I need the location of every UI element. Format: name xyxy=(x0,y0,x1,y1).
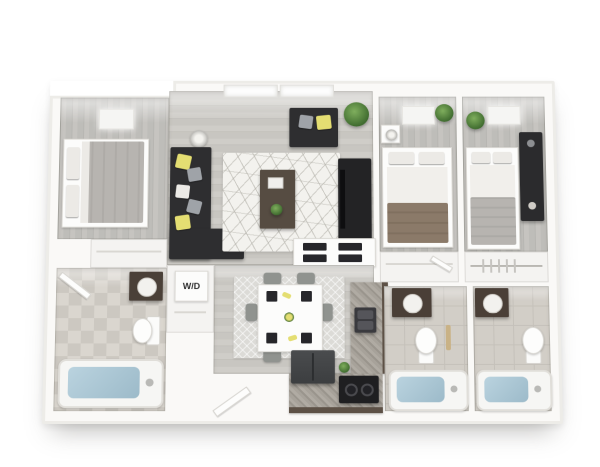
towel-bar xyxy=(446,325,451,350)
bar-placemat xyxy=(303,254,327,262)
washer-dryer-unit: W/D xyxy=(174,271,208,302)
closet-hangers xyxy=(482,259,522,272)
bed-blanket-gray xyxy=(80,142,144,223)
bedroom-3-plant xyxy=(466,112,485,130)
sofa-pillow-white xyxy=(175,184,190,199)
vanity-sink xyxy=(403,294,423,313)
vanity-sink xyxy=(483,294,503,313)
bar-placemat xyxy=(303,243,327,251)
bathroom-1-vanity xyxy=(129,272,163,301)
living-room-floor xyxy=(167,91,374,265)
living-window xyxy=(223,85,277,98)
bed-pillow xyxy=(389,152,414,164)
apartment-floorplan: Mech. xyxy=(42,81,563,424)
bathroom-3-vanity xyxy=(475,288,509,317)
placemat xyxy=(266,333,277,344)
washer-dryer-label: W/D xyxy=(183,281,200,291)
refrigerator xyxy=(291,350,335,383)
bedroom-1-ceiling-light xyxy=(99,109,134,130)
bathtub-water xyxy=(484,377,528,403)
kitchen xyxy=(281,269,383,411)
living-plant xyxy=(344,102,369,126)
bathtub-faucet xyxy=(450,386,457,393)
armchair xyxy=(289,108,338,147)
living-window xyxy=(280,85,334,98)
bed-sheet xyxy=(470,165,516,199)
bedroom-3-closet xyxy=(464,252,548,283)
bathroom-2-vanity xyxy=(392,288,432,317)
bed-pillow xyxy=(472,152,491,163)
laundry-shelf xyxy=(174,311,206,313)
dining-chair xyxy=(264,273,282,285)
coffee-table-books xyxy=(268,177,284,188)
bedroom-2-bed xyxy=(382,147,454,248)
bedroom-2-floor xyxy=(379,97,459,252)
bedroom-2-ceiling-light xyxy=(402,106,435,125)
bedroom-3-bed xyxy=(466,147,521,249)
bedroom-1-floor xyxy=(57,98,169,240)
bathtub-faucet xyxy=(534,386,541,393)
bedroom-3-ceiling-light xyxy=(487,106,520,125)
bathroom-1-toilet xyxy=(132,312,162,349)
kitchen-sink xyxy=(354,307,376,332)
bathroom-1-bathtub xyxy=(57,359,163,408)
bar-placemat xyxy=(338,243,362,251)
bathtub-water xyxy=(397,377,445,403)
tv-screen xyxy=(340,170,345,229)
floorplan-canvas: Mech. xyxy=(0,0,600,467)
counter-plant xyxy=(339,362,350,373)
vanity-sink xyxy=(137,277,157,296)
bedroom-1-closet xyxy=(90,239,167,268)
bed-pillow xyxy=(493,152,512,163)
bed-sheet xyxy=(387,167,448,205)
bedroom-1-bed xyxy=(62,139,150,228)
tv-console xyxy=(338,158,372,240)
sofa-pillow-yellow xyxy=(175,214,191,230)
armchair-pillow-gray xyxy=(298,114,313,129)
bed-sheet xyxy=(80,142,90,223)
bathtub-faucet xyxy=(146,379,154,387)
floor-lamp xyxy=(190,130,208,147)
entry-door xyxy=(212,386,251,417)
bedroom-2-closet xyxy=(380,252,459,283)
bar-placemat xyxy=(338,254,362,262)
bathroom-1-floor xyxy=(53,268,167,411)
bedroom-2-plant xyxy=(435,104,454,122)
armchair-pillow-yellow xyxy=(316,115,332,130)
coffee-table-plant xyxy=(271,204,283,215)
bed-pillow xyxy=(67,147,80,179)
coffee-table xyxy=(260,170,295,229)
bathroom-2-toilet xyxy=(410,327,440,366)
bed-blanket-brown xyxy=(387,203,448,243)
bedroom-3-floor xyxy=(462,97,548,252)
bed-pillow xyxy=(66,185,79,217)
bathroom-1-door xyxy=(58,272,91,300)
laundry-closet: W/D xyxy=(166,265,214,333)
placemat xyxy=(266,291,277,302)
bed-blanket-gray xyxy=(470,197,516,245)
dresser-decor xyxy=(527,140,535,148)
bed-pillow xyxy=(419,152,445,164)
bathtub-water xyxy=(68,367,140,398)
bathroom-3-floor xyxy=(473,286,552,411)
sofa-pillow-gray xyxy=(187,167,203,182)
closet-shelf xyxy=(96,251,161,253)
dresser-decor xyxy=(528,202,536,210)
bedroom-3-dresser xyxy=(519,132,544,221)
bathroom-3-toilet xyxy=(517,327,548,366)
exterior-notch xyxy=(50,81,176,99)
bathroom-2-floor xyxy=(384,286,469,411)
bathroom-2-bathtub xyxy=(389,370,469,411)
dining-chair xyxy=(246,304,258,321)
breakfast-bar xyxy=(293,238,376,267)
bathroom-3-bathtub xyxy=(476,370,553,411)
stove-cooktop xyxy=(339,376,379,404)
bedroom-2-nightstand xyxy=(381,125,401,144)
